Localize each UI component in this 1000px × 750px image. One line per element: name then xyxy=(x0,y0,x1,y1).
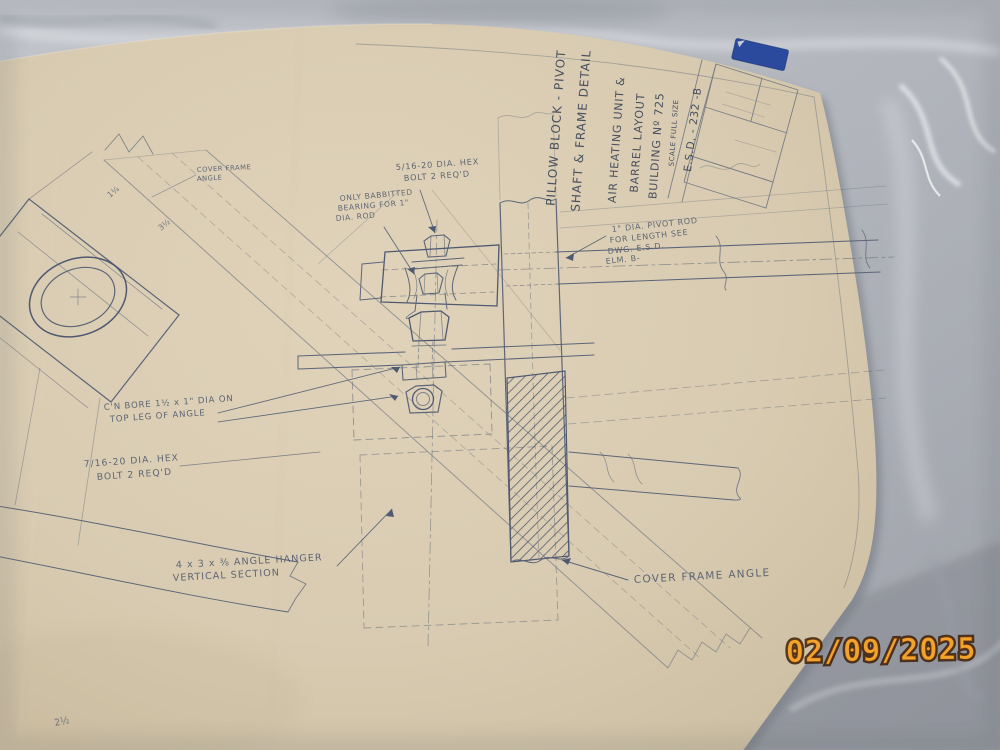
timestamp: 02/09/2025 02/09/2025 xyxy=(786,632,977,670)
label-cover-frame-2: ANGLE xyxy=(197,174,223,183)
photo-scene: PILLOW BLOCK - PIVOT SHAFT & FRAME DETAI… xyxy=(0,0,1000,750)
photo-canvas: PILLOW BLOCK - PIVOT SHAFT & FRAME DETAI… xyxy=(0,0,1000,750)
timestamp-text: 02/09/2025 xyxy=(786,632,977,670)
